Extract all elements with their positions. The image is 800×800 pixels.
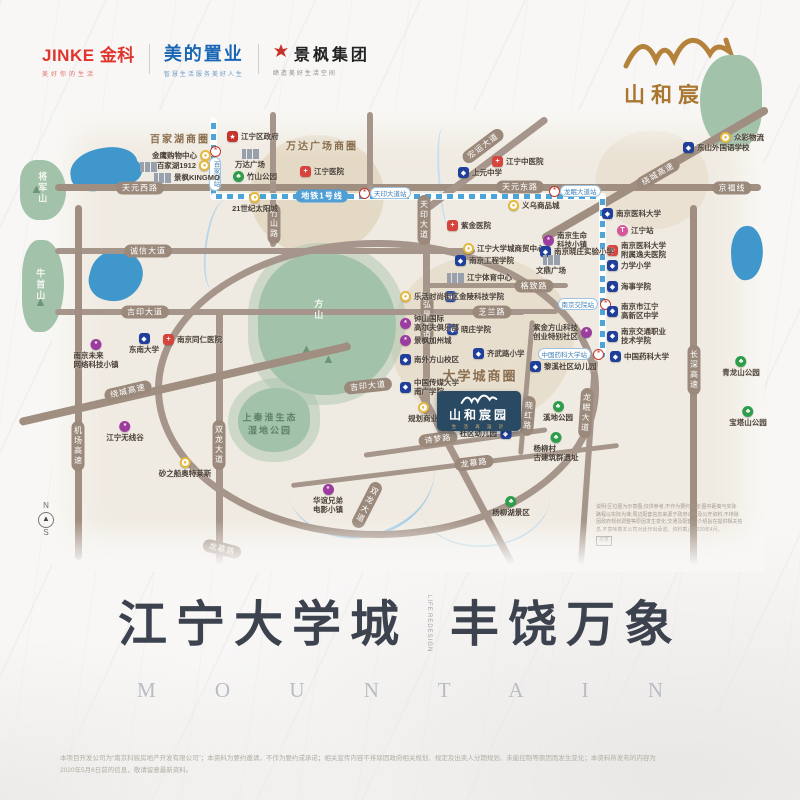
landmark-南京工程学院: ◆南京工程学院 <box>455 255 514 266</box>
school-icon: ◆ <box>458 167 469 178</box>
road-label-京福线: 京福线 <box>713 182 752 195</box>
road-label-天印大道: 天印大道 <box>418 195 431 245</box>
biz-icon: * <box>91 339 102 350</box>
shopping-icon: ● <box>250 192 261 203</box>
landmark-label: 宝塔山公园 <box>729 418 767 427</box>
landmark-label: 文鼎广场 <box>536 266 566 275</box>
headline-part1: 江宁大学城 <box>118 585 408 656</box>
landmark-规划商业: ●规划商业 <box>408 402 438 423</box>
shopping-icon: ● <box>508 200 519 211</box>
road-label-格致路: 格致路 <box>515 280 554 293</box>
biz-icon: * <box>323 484 334 495</box>
headline-section: 江宁大学城 LIFEREDESIGN 丰饶万象 M O U N T A I N <box>0 585 800 703</box>
landmark-label: 南京市江宁高新区中学 <box>621 302 659 320</box>
landmark-label: 紫金医院 <box>461 221 491 230</box>
project-slogan: 生 活 再 設 計 <box>452 424 507 430</box>
school-icon: ◆ <box>400 354 411 365</box>
landmark-label: 海事学院 <box>621 282 651 291</box>
legal-disclaimer: 本项目开发公司为“南京科宸房地产开发有限公司”；本资料为要约邀请，不作为要约或承… <box>60 753 750 778</box>
landmark-label: 力学小学 <box>621 261 651 270</box>
landmark-label: 南京同仁医院 <box>177 335 222 344</box>
road-1 <box>55 248 475 254</box>
disclaimer-line2: 2020年5月6日前的信息，敬请留意最新资料。 <box>60 765 750 777</box>
landmark-label: 上元中学 <box>472 168 502 177</box>
school-icon: ◆ <box>683 142 694 153</box>
metro-station-label: 南京交院站 <box>558 298 599 310</box>
landmark-label: 南外方山校区 <box>414 355 459 364</box>
landmark-砂之船奥特莱斯: ●砂之船奥特莱斯 <box>159 457 212 478</box>
gov-icon: ★ <box>227 131 238 142</box>
biz-icon: * <box>581 327 592 338</box>
shopping-icon: ● <box>199 160 210 171</box>
road-label-诚信大道: 诚信大道 <box>124 245 172 258</box>
district-label-大学城商圈: 大学城商圈 <box>442 366 517 385</box>
school-icon: ◆ <box>602 208 613 219</box>
landmark-东山外国语学校: ◆东山外国语学校 <box>683 142 750 153</box>
metro-station-marker: * <box>549 186 560 197</box>
road-5 <box>367 112 373 192</box>
hosp-icon: + <box>163 334 174 345</box>
landmark-杨柳湖景区: ♣杨柳湖景区 <box>492 496 530 517</box>
landmark-江宁无线谷: *江宁无线谷 <box>106 421 144 442</box>
landmark-label: 景枫加州城 <box>414 336 452 345</box>
landmark-label: 中国药科大学 <box>624 352 669 361</box>
road-label-天元东路: 天元东路 <box>496 181 544 194</box>
landmark-label: 江宁医院 <box>314 167 344 176</box>
building-icon <box>447 271 464 283</box>
landmark-label: 东南大学 <box>129 345 159 354</box>
school-icon: ◆ <box>607 306 618 317</box>
school-icon: ◆ <box>473 348 484 359</box>
shopping-icon: ● <box>463 243 474 254</box>
terrain-label-将军山: 将军山 <box>36 172 49 205</box>
landmark-label: 百家湖1912 <box>157 161 196 170</box>
hosp-icon: + <box>300 166 311 177</box>
landmark-青龙山公园: ♣青龙山公园 <box>722 356 760 377</box>
headline-english: M O U N T A I N <box>0 678 800 703</box>
biz-icon: * <box>120 421 131 432</box>
biz-icon: * <box>400 318 411 329</box>
landmark-label: 竹山公园 <box>247 172 277 181</box>
landmark-label: 江宁体育中心 <box>467 273 512 282</box>
building-icon <box>242 147 259 159</box>
landmark-华谊兄弟: *华谊兄弟电影小镇 <box>313 484 343 514</box>
landmark-黎溪社区幼儿园: ◆黎溪社区幼儿园 <box>530 361 597 372</box>
map-bottom-fade <box>52 520 764 572</box>
landmark-label: 金鹰购物中心 <box>152 151 197 160</box>
landmark-江宁体育中心: 江宁体育中心 <box>447 271 512 283</box>
landmark-label: 砂之船奥特莱斯 <box>159 469 212 478</box>
landmark-海事学院: ◆海事学院 <box>607 281 651 292</box>
landmark-南京同仁医院: +南京同仁医院 <box>163 334 222 345</box>
landmark-label: 东山外国语学校 <box>697 143 750 152</box>
district-label-百家湖商圈: 百家湖商圈 <box>150 131 210 146</box>
landmark-江宁大学城商贸中心: ●江宁大学城商贸中心 <box>463 243 545 254</box>
project-badge: 山和宸园生 活 再 設 計 <box>437 391 521 431</box>
landmark-义乌商品城: ●义乌商品城 <box>508 200 560 211</box>
landmark-label: 黎溪社区幼儿园 <box>544 362 597 371</box>
metro-station-marker: * <box>359 188 370 199</box>
terrain-label-方山: 方山 <box>312 299 325 321</box>
road-label-吉印大道: 吉印大道 <box>121 306 169 319</box>
building-icon <box>154 171 171 183</box>
school-icon: ◆ <box>139 333 150 344</box>
landmark-label: 乐活时尚街区 <box>414 292 459 301</box>
road-label-双龙大道: 双龙大道 <box>213 420 226 470</box>
landmark-南京市江宁: ◆南京市江宁高新区中学 <box>607 302 659 320</box>
shopping-icon: ● <box>400 291 411 302</box>
landmark-江宁医院: +江宁医院 <box>300 166 344 177</box>
landmark-label: 江宁中医院 <box>506 157 544 166</box>
school-icon: ◆ <box>607 260 618 271</box>
landmark-溪地公园: ♣溪地公园 <box>543 401 573 422</box>
road-label-天元西路: 天元西路 <box>116 182 164 195</box>
park-icon: ♣ <box>553 401 564 412</box>
park-icon: ♣ <box>736 356 747 367</box>
school-icon: ◆ <box>400 382 411 393</box>
landmark-label: 紫金方山科技创业特别社区 <box>533 323 578 341</box>
landmark-label: 江宁大学城商贸中心 <box>477 244 545 253</box>
landmark-label: 江宁站 <box>631 226 654 235</box>
school-icon: ◆ <box>607 281 618 292</box>
hosp-icon: + <box>447 220 458 231</box>
metro-station-label: 中国药科大学站 <box>538 348 592 360</box>
landmark-label: 南京工程学院 <box>469 256 514 265</box>
terrain-label-牛首山: 牛首山 <box>34 269 47 302</box>
landmark-label: 华谊兄弟电影小镇 <box>313 496 343 514</box>
landmark-景枫加州城: *景枫加州城 <box>400 335 452 346</box>
landmark-label: 钟山国际高尔夫俱乐部 <box>414 314 459 332</box>
landmark-label: 景枫KINGMO <box>174 173 220 182</box>
landmark-南京未来: *南京未来网络科技小镇 <box>74 339 119 369</box>
metro-station-marker: * <box>593 349 604 360</box>
train-icon: T <box>617 225 628 236</box>
building-icon <box>543 253 560 265</box>
landmark-南京医科大学: ◆南京医科大学 <box>602 208 661 219</box>
landmark-江宁站: T江宁站 <box>617 225 654 236</box>
road-label-长深高速: 长深高速 <box>688 345 701 395</box>
road-3 <box>75 205 82 560</box>
landmark-宝塔山公园: ♣宝塔山公园 <box>729 406 767 427</box>
landmark-南京交通职业: ◆南京交通职业技术学院 <box>607 327 666 345</box>
terrain-label-上秦淮生态|湿地公园: 上秦淮生态湿地公园 <box>242 411 297 436</box>
shopping-icon: ● <box>418 402 429 413</box>
landmark-乐活时尚街区: ●乐活时尚街区 <box>400 291 459 302</box>
park-icon: ♣ <box>743 406 754 417</box>
landmark-南外方山校区: ◆南外方山校区 <box>400 354 459 365</box>
landmark-江宁中医院: +江宁中医院 <box>492 156 544 167</box>
landmark-江宁区政府: ★江宁区政府 <box>227 131 279 142</box>
school-icon: ◆ <box>607 331 618 342</box>
road-label-芝兰路: 芝兰路 <box>473 306 512 319</box>
landmark-label: 江宁区政府 <box>241 132 279 141</box>
road-label-机场高速: 机场高速 <box>72 421 85 471</box>
landmark-百家湖1912: 百家湖1912● <box>157 160 210 171</box>
biz-icon: * <box>543 235 554 246</box>
landmark-钟山国际: *钟山国际高尔夫俱乐部 <box>400 314 459 332</box>
project-name: 山和宸园 <box>449 406 509 423</box>
landmark-label: 金陵科技学院 <box>459 292 504 301</box>
landmark-力学小学: ◆力学小学 <box>607 260 651 271</box>
landmark-label: 杨柳村古建筑群遗址 <box>534 444 579 462</box>
landmark-紫金方山科技: 紫金方山科技创业特别社区* <box>533 323 592 341</box>
school-icon: ◆ <box>455 255 466 266</box>
landmark-label: 溪地公园 <box>543 413 573 422</box>
landmark-中国药科大学: ◆中国药科大学 <box>610 351 669 362</box>
landmark-label: 众彩物流 <box>734 133 764 142</box>
landmark-万达广场: 万达广场 <box>235 147 265 169</box>
landmark-label: 南京医科大学附属逸夫医院 <box>621 241 666 259</box>
landmark-文鼎广场: 文鼎广场 <box>536 253 566 275</box>
school-icon: ◆ <box>530 361 541 372</box>
district-label-万达广场商圈: 万达广场商圈 <box>286 138 358 153</box>
landmark-label: 齐武路小学 <box>487 349 525 358</box>
biz-icon: * <box>400 335 411 346</box>
school-icon: ◆ <box>610 351 621 362</box>
landmark-label: 21世纪太阳城 <box>232 204 278 213</box>
landmark-label: 青龙山公园 <box>722 368 760 377</box>
park-icon: ♣ <box>233 171 244 182</box>
metro-line-1-label: 地铁1号线 <box>295 190 348 203</box>
metro-station-label: 龙眠大道站 <box>560 185 601 197</box>
landmark-齐武路小学: ◆齐武路小学 <box>473 348 525 359</box>
landmark-东南大学: ◆东南大学 <box>129 333 159 354</box>
landmark-label: 规划商业 <box>408 414 438 423</box>
landmark-南京医科大学: +南京医科大学附属逸夫医院 <box>607 241 666 259</box>
park-icon: ♣ <box>551 432 562 443</box>
landmark-上元中学: ◆上元中学 <box>458 167 502 178</box>
landmark-景枫KINGMO: 景枫KINGMO <box>154 171 220 183</box>
landmark-label: 南京交通职业技术学院 <box>621 327 666 345</box>
landmark-label: 南京未来网络科技小镇 <box>74 351 119 369</box>
river-shape-3 <box>435 128 458 229</box>
landmark-label: 南京医科大学 <box>616 209 661 218</box>
hosp-icon: + <box>492 156 503 167</box>
landmark-竹山公园: ♣竹山公园 <box>233 171 277 182</box>
poster-canvas: { "header": { "jinke": {"en": "JINKE", "… <box>0 0 800 800</box>
headline-part2: 丰饶万象 <box>450 585 682 656</box>
landmark-label: 江宁无线谷 <box>106 433 144 442</box>
shopping-icon: ● <box>180 457 191 468</box>
landmark-紫金医院: +紫金医院 <box>447 220 491 231</box>
landmark-21世纪太阳城: ●21世纪太阳城 <box>232 192 278 213</box>
landmark-label: 义乌商品城 <box>522 201 560 210</box>
landmark-杨柳村: ♣杨柳村古建筑群遗址 <box>534 432 579 462</box>
landmark-label: 杨柳湖景区 <box>492 508 530 517</box>
lake-shape-3 <box>729 225 765 281</box>
park-icon: ♣ <box>506 496 517 507</box>
landmark-label: 万达广场 <box>235 160 265 169</box>
metro-station-marker: * <box>210 146 221 157</box>
landmark-label: 晓庄学院 <box>461 325 491 334</box>
disclaimer-line1: 本项目开发公司为“南京科宸房地产开发有限公司”；本资料为要约邀请，不作为要约或承… <box>60 753 750 765</box>
headline-divider-text: LIFEREDESIGN <box>426 595 432 647</box>
mountain-stroke-icon <box>459 393 499 405</box>
metro-station-label: 天印大道站 <box>370 187 411 199</box>
